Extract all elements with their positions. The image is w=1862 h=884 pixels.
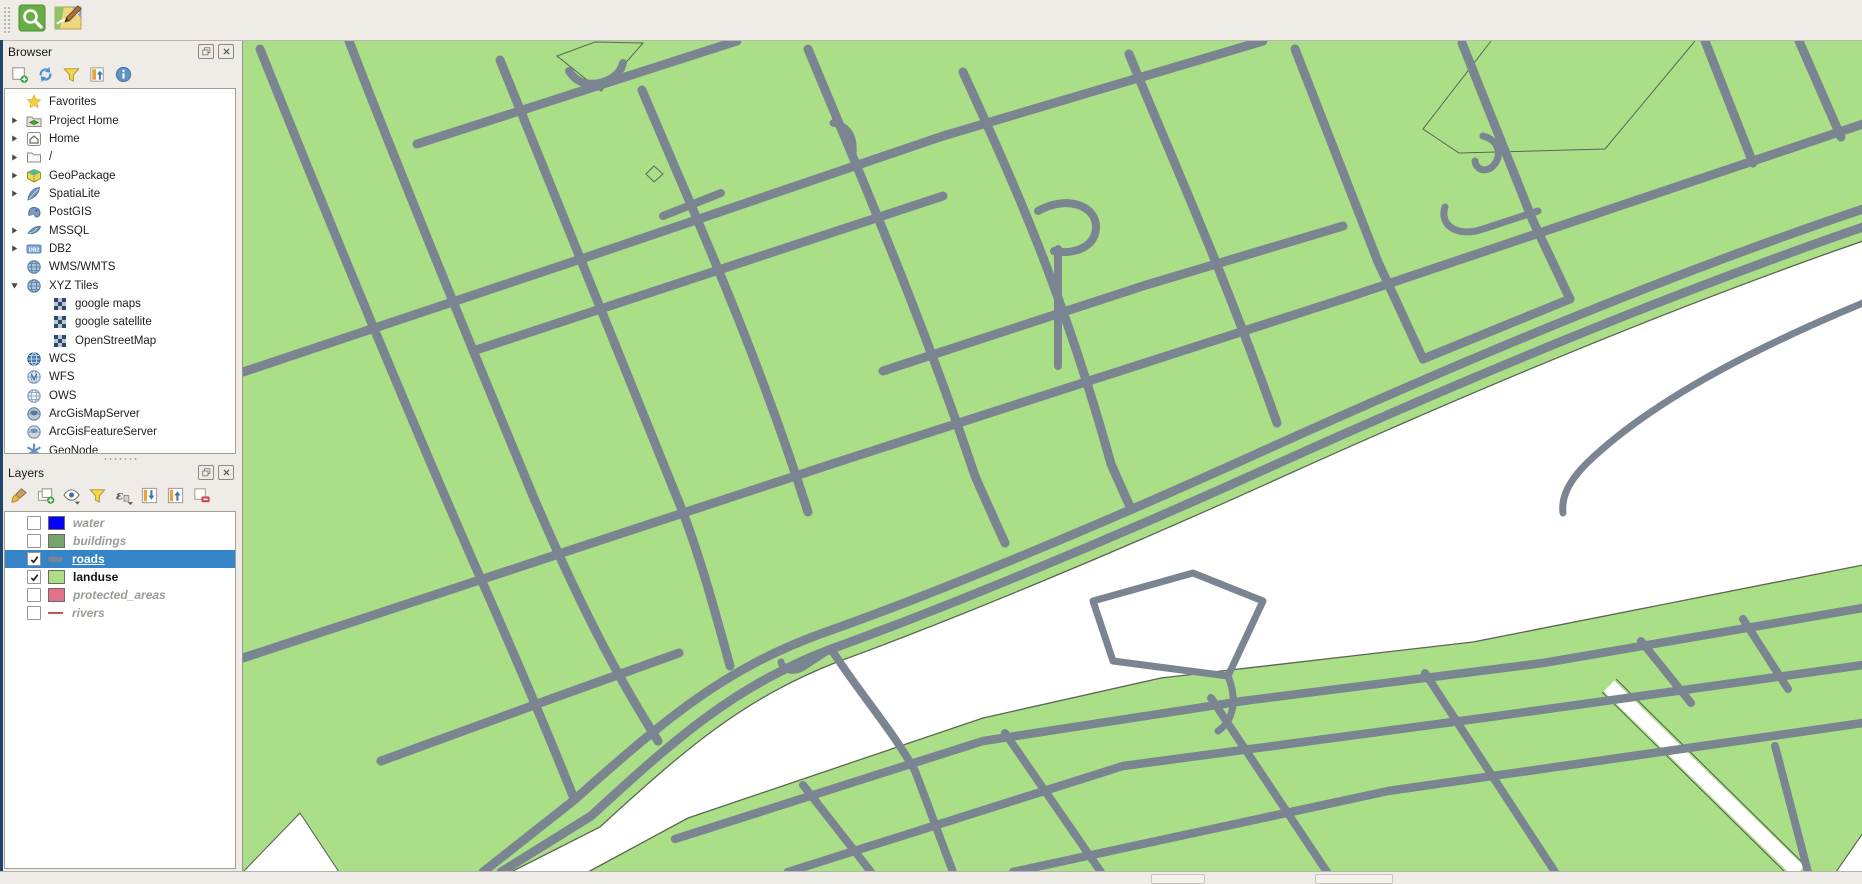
status-bar [0, 871, 1862, 880]
toolbar-drag-handle[interactable] [3, 6, 11, 34]
browser-item-wms-wmts[interactable]: WMS/WMTS [5, 258, 235, 276]
google-satellite-icon [52, 314, 68, 330]
manage-map-themes-button[interactable] [58, 484, 84, 507]
layer-checkbox[interactable] [27, 570, 41, 584]
remove-layer-icon [192, 486, 211, 505]
browser-item-project-home[interactable]: Project Home [5, 111, 235, 129]
browser-item-label: SpatiaLite [49, 188, 100, 200]
geopackage-icon [26, 168, 42, 184]
browser-item-label: ArcGisMapServer [49, 408, 140, 420]
layer-item-protected-areas[interactable]: protected_areas [5, 586, 235, 604]
openstreetmap-icon [52, 333, 68, 349]
expand-all-icon [140, 486, 159, 505]
osm-place-search-button[interactable] [17, 5, 47, 35]
wcs-icon [26, 351, 42, 367]
ows-icon [26, 388, 42, 404]
layer-swatch [48, 607, 64, 619]
layers-panel-title: Layers [8, 466, 194, 480]
eye-icon [62, 486, 81, 505]
left-dock: Browser FavoritesProject HomeHome/GeoPac… [3, 41, 237, 880]
google-maps-icon [52, 296, 68, 312]
project-home-icon [26, 113, 42, 129]
brush-icon [10, 486, 29, 505]
browser-float-button[interactable] [198, 44, 214, 59]
browser-item-label: google satellite [75, 316, 152, 328]
layer-item-water[interactable]: water [5, 514, 235, 532]
chevron-down-icon[interactable] [10, 281, 19, 290]
xyz-tiles-icon [26, 278, 42, 294]
chevron-right-icon[interactable] [10, 226, 19, 235]
browser-item-[interactable]: / [5, 148, 235, 166]
browser-item-label: XYZ Tiles [49, 280, 98, 292]
collapse-all-icon [166, 486, 185, 505]
status-widget[interactable] [1315, 874, 1393, 884]
layers-list: waterbuildingsroadslanduseprotected_area… [4, 511, 236, 869]
spatialite-icon [26, 186, 42, 202]
layer-item-roads[interactable]: roads [5, 550, 235, 568]
home-icon [26, 131, 42, 147]
browser-item-favorites[interactable]: Favorites [5, 93, 235, 111]
expression-icon: ε [114, 486, 133, 505]
filter-legend-button[interactable] [84, 484, 110, 507]
osm-search-icon [18, 4, 46, 37]
browser-item-label: Favorites [49, 96, 96, 108]
browser-item-db2[interactable]: DB2DB2 [5, 240, 235, 258]
geonode-icon [26, 443, 42, 454]
db2-icon: DB2 [26, 241, 42, 257]
layer-label: landuse [73, 570, 118, 584]
chevron-right-icon[interactable] [10, 189, 19, 198]
browser-toolbar [3, 61, 237, 88]
collapse-all-button[interactable] [162, 484, 188, 507]
layer-item-buildings[interactable]: buildings [5, 532, 235, 550]
layer-checkbox[interactable] [27, 534, 41, 548]
arcgismapserver-icon [26, 406, 42, 422]
main-toolbar [0, 0, 1862, 41]
browser-item-mssql[interactable]: MSSQL [5, 221, 235, 239]
browser-item-google-satellite[interactable]: google satellite [5, 313, 235, 331]
wfs-icon [26, 369, 42, 385]
wms-wmts-icon [26, 259, 42, 275]
postgis-icon [26, 204, 42, 220]
browser-item-xyz-tiles[interactable]: XYZ Tiles [5, 276, 235, 294]
collapse-all-button[interactable] [84, 63, 110, 86]
layers-toolbar: ε [3, 482, 237, 509]
info-icon [114, 65, 133, 84]
layer-label: buildings [73, 534, 126, 548]
layers-panel-header: Layers [3, 462, 237, 482]
collapse-tree-icon [88, 65, 107, 84]
browser-item-openstreetmap[interactable]: OpenStreetMap [5, 331, 235, 349]
browser-item-ows[interactable]: OWS [5, 387, 235, 405]
expand-all-button[interactable] [136, 484, 162, 507]
browser-item-wcs[interactable]: WCS [5, 350, 235, 368]
osm-edit-button[interactable] [53, 5, 83, 35]
layer-label: rivers [72, 606, 105, 620]
browser-item-geopackage[interactable]: GeoPackage [5, 166, 235, 184]
browser-item-label: Project Home [49, 115, 119, 127]
browser-item-arcgisfeatureserver[interactable]: ArcGisFeatureServer [5, 423, 235, 441]
remove-layer-button[interactable] [188, 484, 214, 507]
properties-button[interactable] [110, 63, 136, 86]
chevron-right-icon[interactable] [10, 244, 19, 253]
refresh-button[interactable] [32, 63, 58, 86]
layer-checkbox[interactable] [27, 588, 41, 602]
layer-item-landuse[interactable]: landuse [5, 568, 235, 586]
browser-item-postgis[interactable]: PostGIS [5, 203, 235, 221]
browser-item-label: PostGIS [49, 206, 92, 218]
browser-item-label: OpenStreetMap [75, 335, 156, 347]
layer-swatch [48, 553, 64, 565]
browser-item-label: OWS [49, 390, 76, 402]
status-widget[interactable] [1151, 874, 1205, 884]
browser-item-label: ArcGisFeatureServer [49, 426, 157, 438]
add-group-button[interactable] [32, 484, 58, 507]
svg-text:DB2: DB2 [29, 247, 39, 253]
filter-by-expression-button[interactable]: ε [110, 484, 136, 507]
open-layer-styling-button[interactable] [6, 484, 32, 507]
layers-close-button[interactable] [218, 465, 234, 480]
chevron-right-icon[interactable] [10, 134, 19, 143]
chevron-right-icon[interactable] [10, 171, 19, 180]
favorites-icon [26, 94, 42, 110]
layer-label: roads [72, 552, 105, 566]
layer-swatch [48, 588, 65, 602]
layer-item-rivers[interactable]: rivers [5, 604, 235, 622]
layer-checkbox[interactable] [27, 552, 41, 566]
layers-float-button[interactable] [198, 465, 214, 480]
browser-item-google-maps[interactable]: google maps [5, 295, 235, 313]
arcgisfeatureserver-icon [26, 424, 42, 440]
-icon [26, 149, 42, 165]
browser-item-label: Home [49, 133, 80, 145]
add-group-icon [36, 486, 55, 505]
browser-item-label: / [49, 151, 52, 163]
browser-panel-title: Browser [8, 45, 194, 59]
refresh-icon [36, 65, 55, 84]
layer-label: protected_areas [73, 588, 166, 602]
funnel-icon [88, 486, 107, 505]
osm-edit-icon [54, 4, 82, 37]
layer-checkbox[interactable] [27, 606, 41, 620]
layer-label: water [73, 516, 104, 530]
browser-item-label: WMS/WMTS [49, 261, 115, 273]
browser-close-button[interactable] [218, 44, 234, 59]
browser-item-geonode[interactable]: GeoNode [5, 442, 235, 454]
add-layer-icon [10, 65, 29, 84]
panel-splitter[interactable] [3, 455, 237, 462]
filter-browser-button[interactable] [58, 63, 84, 86]
browser-item-label: DB2 [49, 243, 71, 255]
browser-item-spatialite[interactable]: SpatiaLite [5, 185, 235, 203]
funnel-icon [62, 65, 81, 84]
browser-item-label: WCS [49, 353, 76, 365]
layer-checkbox[interactable] [27, 516, 41, 530]
chevron-right-icon[interactable] [10, 153, 19, 162]
layer-swatch [48, 570, 65, 584]
svg-text:ε: ε [115, 487, 123, 502]
browser-panel-header: Browser [3, 41, 237, 61]
layer-swatch [48, 534, 65, 548]
browser-item-label: google maps [75, 298, 141, 310]
browser-item-arcgismapserver[interactable]: ArcGisMapServer [5, 405, 235, 423]
add-selected-layers-button[interactable] [6, 63, 32, 86]
browser-item-label: WFS [49, 371, 75, 383]
browser-item-wfs[interactable]: WFS [5, 368, 235, 386]
mssql-icon [26, 223, 42, 239]
layer-swatch [48, 516, 65, 530]
browser-item-label: MSSQL [49, 225, 89, 237]
browser-item-home[interactable]: Home [5, 130, 235, 148]
chevron-right-icon[interactable] [10, 116, 19, 125]
map-canvas[interactable] [242, 41, 1862, 872]
browser-item-label: GeoPackage [49, 170, 116, 182]
browser-tree: FavoritesProject HomeHome/GeoPackageSpat… [4, 88, 236, 454]
browser-item-label: GeoNode [49, 445, 98, 454]
